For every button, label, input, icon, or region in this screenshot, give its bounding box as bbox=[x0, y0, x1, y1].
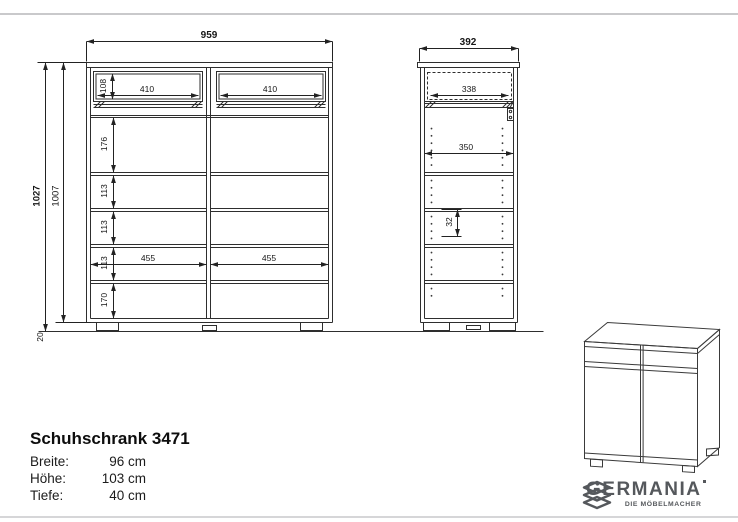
spec-row-height: Höhe: 103 cm bbox=[30, 470, 190, 487]
side-feet bbox=[424, 323, 516, 331]
front-view-drawing bbox=[87, 63, 333, 331]
dim-front-carcass-height: 1007 bbox=[51, 185, 62, 206]
dim-front-total-height: 1027 bbox=[32, 185, 43, 206]
spec-value: 40 cm bbox=[90, 487, 146, 504]
isometric-thumbnail bbox=[585, 323, 720, 473]
dim-compartment-5: 170 bbox=[99, 293, 109, 307]
front-top-panel bbox=[87, 63, 333, 68]
dim-bay-width-left: 455 bbox=[141, 253, 155, 263]
dim-compartment-2: 113 bbox=[99, 184, 109, 198]
dim-compartment-4: 113 bbox=[99, 256, 109, 270]
dim-front-plinth-height: 20 bbox=[35, 332, 45, 342]
spec-label: Höhe: bbox=[30, 470, 90, 487]
side-shelf-lines bbox=[425, 173, 514, 284]
product-title: Schuhschrank 3471 bbox=[30, 429, 190, 449]
spec-value: 96 cm bbox=[90, 453, 146, 470]
side-top-panel bbox=[418, 63, 520, 68]
flap-stay-hardware bbox=[508, 102, 514, 121]
registered-mark bbox=[703, 480, 706, 483]
dimension-lines bbox=[38, 42, 519, 332]
side-view-drawing bbox=[418, 63, 520, 331]
dim-drawer-width-left: 410 bbox=[140, 84, 154, 94]
spec-row-width: Breite: 96 cm bbox=[30, 453, 190, 470]
brand-name: GERMANIA bbox=[586, 479, 701, 501]
dim-shelf-depth: 350 bbox=[459, 142, 473, 152]
dim-compartment-1: 176 bbox=[99, 137, 109, 151]
dim-drawer-depth: 338 bbox=[462, 84, 476, 94]
dim-hole-pitch: 32 bbox=[444, 217, 454, 227]
brand-text-block: GERMANIA DIE MÖBELMACHER bbox=[586, 479, 701, 508]
dim-compartment-3: 113 bbox=[99, 220, 109, 234]
brand-logo: GERMANIA DIE MÖBELMACHER bbox=[582, 479, 701, 508]
product-info-block: Schuhschrank 3471 Breite: 96 cm Höhe: 10… bbox=[30, 429, 190, 504]
dimension-labels: 959 1027 1007 20 108 410 410 176 113 113… bbox=[32, 30, 477, 342]
dim-drawer-height: 108 bbox=[98, 79, 108, 93]
dim-drawer-width-right: 410 bbox=[263, 84, 277, 94]
dim-bay-width-right: 455 bbox=[262, 253, 276, 263]
front-feet bbox=[97, 323, 323, 331]
spec-label: Tiefe: bbox=[30, 487, 90, 504]
spec-label: Breite: bbox=[30, 453, 90, 470]
dim-front-overall-width: 959 bbox=[201, 30, 218, 41]
spec-value: 103 cm bbox=[90, 470, 146, 487]
dim-side-depth: 392 bbox=[460, 37, 477, 48]
spec-row-depth: Tiefe: 40 cm bbox=[30, 487, 190, 504]
side-drawer-front-bar bbox=[425, 102, 514, 108]
front-shelf-lines bbox=[91, 173, 329, 284]
technical-drawing-page: 959 1027 1007 20 108 410 410 176 113 113… bbox=[0, 0, 738, 522]
brand-tagline: DIE MÖBELMACHER bbox=[586, 501, 701, 508]
